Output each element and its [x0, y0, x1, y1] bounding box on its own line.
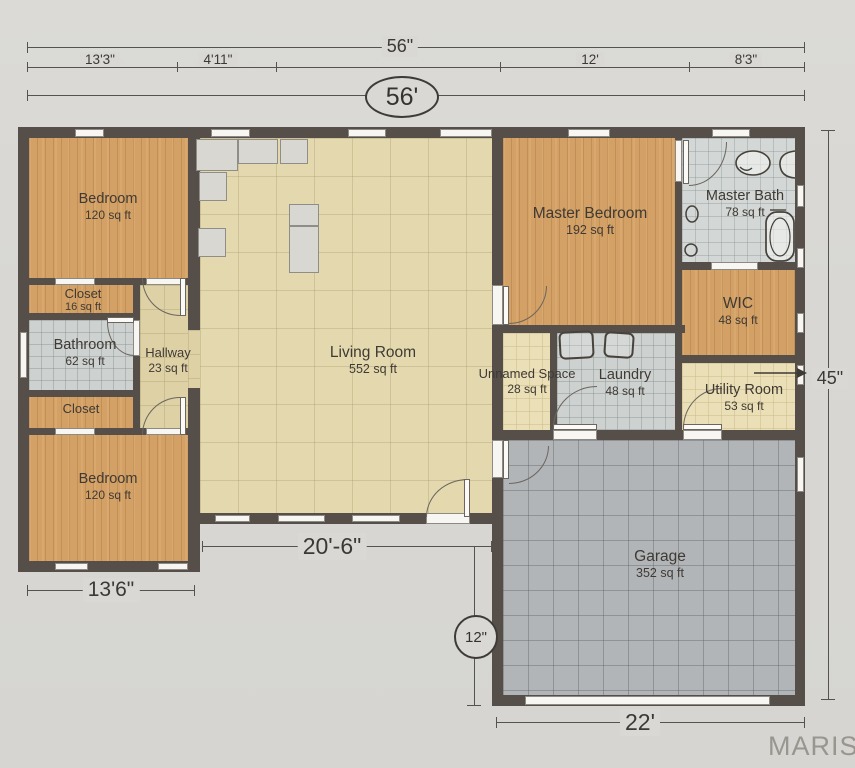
utility-area: 53 sq ft	[705, 399, 783, 414]
kitchen-appliance-1	[199, 172, 227, 201]
utility-name: Utility Room	[705, 381, 783, 399]
dimension-seg4: 8'3"	[730, 52, 762, 67]
dimension-right-height: 45"	[812, 368, 848, 389]
tick	[496, 717, 497, 728]
tick	[27, 585, 28, 596]
tick	[27, 62, 28, 72]
wall-hallway-left	[133, 285, 140, 428]
fixture-oval-1	[686, 206, 698, 222]
dimension-oval-total: 56'	[365, 76, 439, 118]
window-master-bedroom	[568, 129, 610, 137]
wic-name: WIC	[718, 294, 757, 313]
wall-garage-left	[492, 478, 503, 706]
tick	[804, 717, 805, 728]
wall-outer-top	[18, 127, 805, 138]
master-bedroom-area: 192 sq ft	[533, 223, 648, 239]
bedroom-top-name: Bedroom	[79, 190, 138, 208]
tick	[202, 541, 203, 552]
dimension-porch-circle: 12"	[454, 615, 498, 659]
room-label-bathroom: Bathroom 62 sq ft	[54, 336, 117, 369]
dimension-bedroom-width: 13'6"	[83, 578, 140, 602]
floor-living-room	[200, 138, 492, 513]
room-label-closet-bottom: Closet	[63, 401, 100, 417]
wall-left-rooms-living-lower	[188, 388, 200, 561]
tick	[804, 90, 805, 101]
tick	[821, 130, 835, 131]
master-bath-name: Master Bath	[706, 187, 784, 205]
wall-wic-utility	[675, 355, 805, 363]
toilet-icon	[736, 151, 770, 175]
window-master-bath-top	[712, 129, 750, 137]
window-living-bottom-3	[352, 515, 400, 522]
wic-area: 48 sq ft	[718, 313, 757, 328]
kitchen-counter-top-1	[238, 139, 278, 164]
room-label-unnamed: Unnamed Space 28 sq ft	[479, 366, 576, 397]
closet-bottom-name: Closet	[63, 401, 100, 417]
porch-depth-text: 12"	[465, 629, 487, 646]
laundry-area: 48 sq ft	[599, 384, 651, 399]
wall-living-master-upper	[492, 127, 503, 285]
living-name: Living Room	[330, 343, 416, 362]
window-bedroom-top	[75, 129, 104, 137]
tick	[491, 541, 492, 552]
sink-icon	[780, 151, 795, 178]
window-living-top-2	[440, 129, 492, 137]
window-wic-right	[797, 313, 804, 333]
dimension-line-right	[828, 131, 829, 700]
tick	[177, 62, 178, 72]
tick	[500, 62, 501, 72]
dryer-icon	[603, 331, 635, 359]
tick	[27, 42, 28, 53]
bathroom-name: Bathroom	[54, 336, 117, 354]
kitchen-counter-corner	[196, 139, 238, 171]
master-bath-area: 78 sq ft	[706, 205, 784, 220]
kitchen-island-bottom	[289, 226, 319, 273]
tick	[689, 62, 690, 72]
window-bedroom-bottom-2	[158, 563, 188, 570]
utility-arrow-icon	[752, 366, 808, 380]
opening-master-bath-door	[675, 140, 682, 182]
opening-laundry-garage	[553, 430, 597, 440]
bathroom-area: 62 sq ft	[54, 354, 117, 369]
room-label-master-bedroom: Master Bedroom 192 sq ft	[533, 204, 648, 239]
wall-bathroom-closet	[18, 390, 140, 397]
room-label-master-bath: Master Bath 78 sq ft	[706, 187, 784, 220]
closet-top-area: 16 sq ft	[65, 301, 102, 313]
opening-bathroom-door	[133, 320, 140, 356]
living-area: 552 sq ft	[330, 362, 416, 378]
floor-plan-canvas: 56" 13'3" 4'11" 12' 8'3" 56' 45"	[0, 0, 855, 768]
tick	[194, 585, 195, 596]
garage-area: 352 sq ft	[634, 566, 686, 582]
washer-icon	[558, 330, 594, 360]
room-label-laundry: Laundry 48 sq ft	[599, 366, 651, 399]
tick	[467, 546, 481, 547]
window-bathroom-left	[20, 332, 27, 378]
window-bedroom-bottom-1	[55, 563, 88, 570]
room-label-bedroom-top: Bedroom 120 sq ft	[79, 190, 138, 223]
unnamed-name: Unnamed Space	[479, 366, 576, 382]
hallway-name: Hallway	[145, 345, 191, 361]
master-bedroom-name: Master Bedroom	[533, 204, 648, 223]
room-label-utility: Utility Room 53 sq ft	[705, 381, 783, 414]
room-label-bedroom-bottom: Bedroom 120 sq ft	[79, 470, 138, 503]
unnamed-area: 28 sq ft	[479, 382, 576, 397]
wall-laundry-utility	[675, 333, 682, 440]
garage-name: Garage	[634, 547, 686, 566]
door-garage-side	[797, 457, 804, 492]
oval-total-text: 56'	[386, 83, 419, 112]
room-label-garage: Garage 352 sq ft	[634, 547, 686, 582]
hallway-area: 23 sq ft	[145, 361, 191, 376]
kitchen-island-top	[289, 204, 319, 226]
garage-vehicle-door	[525, 696, 770, 705]
tick	[804, 62, 805, 72]
opening-utility-garage	[683, 430, 722, 440]
window-living-bottom-1	[215, 515, 250, 522]
window-kitchen	[211, 129, 250, 137]
tick	[821, 699, 835, 700]
dimension-living-width: 20'-6"	[298, 533, 367, 560]
window-living-bottom-2	[278, 515, 325, 522]
opening-closet-top	[55, 278, 95, 285]
tick	[467, 705, 481, 706]
tick	[276, 62, 277, 72]
laundry-name: Laundry	[599, 366, 651, 384]
fixture-oval-2	[685, 244, 697, 256]
dimension-seg2: 4'11"	[199, 52, 238, 67]
wall-outer-right	[795, 127, 805, 706]
room-label-closet-top: Closet 16 sq ft	[65, 287, 102, 313]
door-leaf-bedroom-bottom	[180, 397, 186, 435]
dimension-seg1: 13'3"	[80, 52, 120, 67]
room-label-wic: WIC 48 sq ft	[718, 294, 757, 328]
window-living-top-1	[348, 129, 386, 137]
kitchen-counter-top-2	[280, 139, 308, 164]
dimension-top-overall: 56"	[382, 36, 418, 57]
bedroom-bottom-name: Bedroom	[79, 470, 138, 488]
window-master-bath-right-2	[797, 248, 804, 268]
room-label-hallway: Hallway 23 sq ft	[145, 345, 191, 376]
tick	[27, 90, 28, 101]
dimension-garage-width: 22'	[620, 709, 660, 736]
bedroom-top-area: 120 sq ft	[79, 208, 138, 223]
room-label-living: Living Room 552 sq ft	[330, 343, 416, 378]
wall-garage-top	[492, 430, 805, 440]
bedroom-bottom-area: 120 sq ft	[79, 488, 138, 503]
window-master-bath-right-1	[797, 185, 804, 207]
opening-closet-bottom	[55, 428, 95, 435]
opening-garage-entry	[492, 440, 503, 478]
tick	[804, 42, 805, 53]
opening-bath-wic	[711, 262, 758, 270]
closet-top-name: Closet	[65, 287, 102, 301]
door-leaf-bedroom-top	[180, 278, 186, 316]
opening-master-bedroom-door	[492, 285, 503, 325]
dimension-seg3: 12'	[576, 52, 604, 67]
maris-watermark: MARIS	[768, 731, 855, 762]
kitchen-appliance-2	[198, 228, 226, 257]
